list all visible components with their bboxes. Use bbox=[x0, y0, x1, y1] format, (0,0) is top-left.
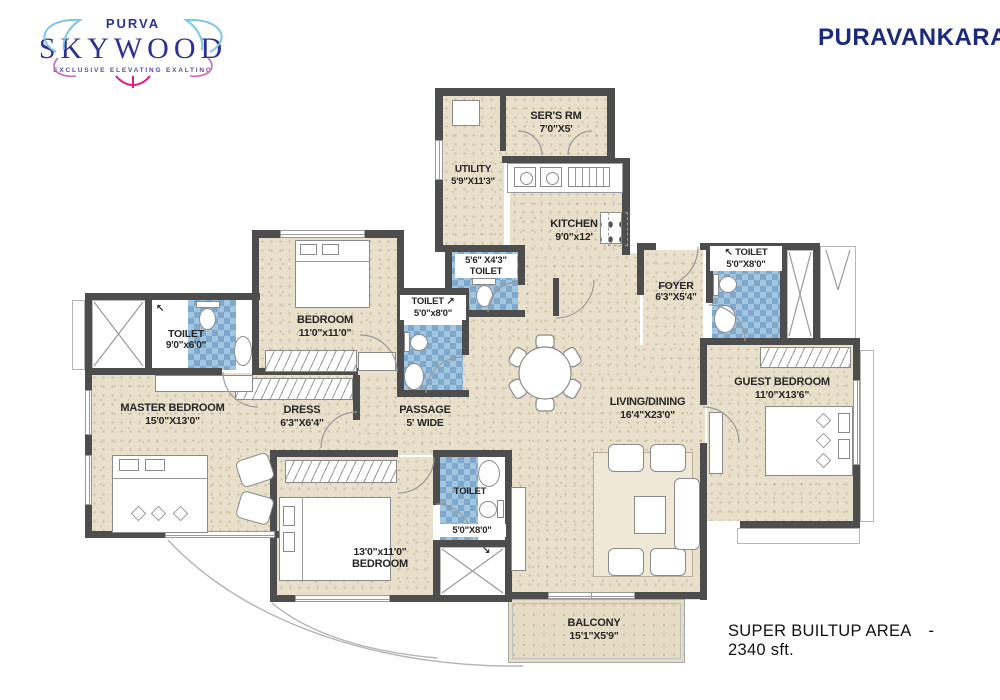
room-name: DRESS bbox=[262, 404, 342, 417]
room-dims: 5'0"X8'0" bbox=[712, 259, 780, 270]
quilt-diamond-icon bbox=[173, 506, 189, 522]
wall-segment bbox=[85, 293, 152, 300]
wall-segment bbox=[435, 88, 615, 96]
ledge-right bbox=[860, 350, 874, 522]
toilet-bowl-icon bbox=[479, 501, 497, 518]
room-name: ↖ TOILET bbox=[712, 247, 780, 259]
toilet-bowl-icon bbox=[476, 285, 493, 307]
room-name: SER'S RM bbox=[505, 110, 607, 123]
wall-segment bbox=[85, 368, 222, 375]
floor-plan-page: PURVA SKYWOOD EXCLUSIVE ELEVATING EXALTI… bbox=[0, 0, 1000, 700]
washbasin-icon bbox=[404, 363, 424, 390]
room-name: BEDROOM bbox=[330, 558, 430, 571]
armchair-icon bbox=[650, 548, 686, 576]
room-dims: 15'0"X13'0" bbox=[95, 415, 250, 427]
toilet-tank-icon bbox=[497, 500, 504, 518]
armchair-icon bbox=[608, 444, 644, 472]
armchair-icon bbox=[650, 444, 686, 472]
puravankara-wordmark: PURAVANKARA bbox=[818, 24, 1000, 52]
wall-segment bbox=[397, 288, 469, 295]
wall-segment bbox=[635, 592, 707, 599]
shaft-top-right bbox=[787, 250, 815, 340]
wall-segment bbox=[397, 390, 469, 397]
wall-segment bbox=[518, 245, 525, 285]
area-value: 2340 sft. bbox=[728, 641, 794, 660]
room-name: UTILITY bbox=[438, 164, 508, 176]
sofa-icon bbox=[674, 478, 700, 550]
room-name: KITCHEN bbox=[520, 218, 628, 231]
room-dims: 5'9"X11'3" bbox=[438, 176, 508, 187]
kitchen-sink-icon bbox=[514, 167, 536, 187]
room-label-toilet-guest: ↖ TOILET 5'0"X8'0" bbox=[710, 246, 782, 271]
logo-flourish-icon bbox=[28, 6, 238, 96]
wall-segment bbox=[145, 293, 260, 300]
tv-console-living bbox=[511, 487, 526, 571]
skywood-logo: PURVA SKYWOOD EXCLUSIVE ELEVATING EXALTI… bbox=[28, 6, 238, 96]
room-dims: 5'0"x8'0" bbox=[402, 308, 464, 319]
balcony-door bbox=[548, 592, 592, 599]
tv-unit-guest bbox=[709, 412, 723, 474]
armchair-icon bbox=[608, 548, 644, 576]
wall-segment bbox=[505, 592, 548, 599]
room-label-toilet-bedroom3-dims: 5'0"X8'0" bbox=[438, 524, 506, 537]
shaft-left bbox=[92, 300, 147, 370]
washing-machine-icon bbox=[452, 100, 480, 126]
room-name: FOYER bbox=[643, 280, 709, 292]
room-label-living: LIVING/DINING 16'4"X23'0" bbox=[585, 396, 710, 421]
window bbox=[85, 390, 92, 435]
room-name: PASSAGE bbox=[385, 404, 465, 417]
quilt-diamond-icon bbox=[816, 413, 832, 429]
room-name: LIVING/DINING bbox=[585, 396, 710, 409]
room-label-kitchen: KITCHEN 9'0"x12' bbox=[520, 218, 628, 243]
pillow-icon bbox=[838, 413, 850, 433]
shaft-bottom bbox=[440, 547, 507, 597]
room-label-foyer: FOYER 6'3"X5'4" bbox=[643, 280, 709, 304]
room-dims: 11'0"x11'0" bbox=[262, 327, 388, 339]
room-label-toilet-passage: TOILET ↗ 5'0"x8'0" bbox=[400, 295, 466, 320]
wall-segment bbox=[433, 547, 440, 602]
kitchen-sink-icon bbox=[540, 167, 562, 187]
wall-segment bbox=[700, 338, 707, 405]
room-label-bedroom2: BEDROOM 11'0"x11'0" bbox=[262, 314, 388, 339]
room-dims: 6'3"X6'4" bbox=[262, 417, 342, 429]
coffee-table-icon bbox=[634, 496, 666, 534]
pillow-icon bbox=[119, 459, 139, 471]
balcony-door bbox=[591, 592, 635, 599]
wardrobe-guest bbox=[760, 347, 851, 368]
dresser-bedroom2 bbox=[358, 352, 396, 371]
room-label-utility: UTILITY 5'9"X11'3" bbox=[438, 164, 508, 187]
room-name: GUEST BEDROOM bbox=[707, 376, 857, 389]
room-name: TOILET bbox=[150, 328, 222, 340]
room-dims: 9'0"x6'0" bbox=[150, 340, 222, 352]
quilt-diamond-icon bbox=[816, 453, 832, 469]
wall-segment bbox=[433, 450, 440, 505]
door-direction-arrow-icon: ↘ bbox=[482, 545, 490, 556]
ledge-guest-bottom bbox=[737, 528, 860, 544]
door-direction-arrow-icon: ↖ bbox=[156, 303, 164, 314]
bed-master bbox=[112, 455, 208, 533]
drainboard-icon bbox=[568, 167, 610, 187]
room-name: TOILET bbox=[440, 486, 500, 497]
room-label-guest: GUEST BEDROOM 11'0"X13'6" bbox=[707, 376, 857, 401]
room-name: BALCONY bbox=[540, 617, 648, 630]
pillow-icon bbox=[283, 532, 295, 552]
room-dims: 16'4"X23'0" bbox=[585, 409, 710, 421]
toilet-bowl-icon bbox=[199, 308, 216, 330]
room-dims: 13'0"x11'0" bbox=[330, 546, 430, 558]
room-label-dress: DRESS 6'3"X6'4" bbox=[262, 404, 342, 429]
wall-segment bbox=[553, 278, 559, 316]
area-separator: - bbox=[929, 622, 935, 641]
wall-segment bbox=[700, 443, 707, 600]
ledge-left bbox=[72, 300, 85, 370]
pillow-icon bbox=[145, 459, 165, 471]
toilet-tank-icon bbox=[196, 301, 220, 308]
room-name: TOILET ↗ bbox=[402, 296, 464, 308]
wall-segment bbox=[433, 450, 512, 457]
window bbox=[85, 455, 92, 505]
room-dims: 11'0"X13'6" bbox=[707, 389, 857, 401]
wall-segment bbox=[353, 375, 360, 420]
pillow-icon bbox=[838, 439, 850, 459]
wall-segment bbox=[433, 540, 512, 547]
ledge-top-right bbox=[820, 246, 856, 340]
bed-bedroom2 bbox=[295, 240, 370, 308]
wall-segment bbox=[270, 450, 398, 457]
washbasin-icon bbox=[478, 460, 500, 487]
wardrobe-bedroom3 bbox=[285, 460, 397, 483]
dresser-master bbox=[155, 375, 253, 392]
wall-segment bbox=[607, 88, 615, 166]
quilt-diamond-icon bbox=[131, 506, 147, 522]
room-label-sers: SER'S RM 7'0"X5' bbox=[505, 110, 607, 135]
room-dims: 5' WIDE bbox=[385, 417, 465, 429]
wall-segment bbox=[433, 595, 512, 602]
room-dims: 5'0"X8'0" bbox=[440, 525, 504, 536]
wall-segment bbox=[502, 156, 610, 163]
area-label: SUPER BUILTUP AREA bbox=[728, 622, 912, 641]
door-direction-arrow-icon: ↖ bbox=[724, 247, 732, 258]
wall-segment bbox=[85, 293, 92, 375]
room-label-toilet-kitchen: 5'6" X4'3" TOILET bbox=[455, 254, 517, 278]
pillow-icon bbox=[300, 244, 317, 255]
room-label-passage: PASSAGE 5' WIDE bbox=[385, 404, 465, 429]
window bbox=[295, 595, 390, 602]
room-dims: 15'1"X5'9" bbox=[540, 630, 648, 642]
room-dims: 9'0"x12' bbox=[520, 231, 628, 243]
quilt-diamond-icon bbox=[816, 433, 832, 449]
pillow-icon bbox=[322, 244, 339, 255]
room-dims: 5'6" X4'3" bbox=[457, 255, 515, 266]
room-label-master: MASTER BEDROOM 15'0"X13'0" bbox=[95, 402, 250, 427]
bed-guest bbox=[765, 406, 853, 476]
room-name: TOILET bbox=[457, 266, 515, 277]
washbasin-icon bbox=[234, 336, 252, 366]
wall-segment bbox=[813, 243, 820, 343]
room-name: MASTER BEDROOM bbox=[95, 402, 250, 415]
window bbox=[280, 230, 365, 238]
door-direction-arrow-icon: ↗ bbox=[446, 296, 454, 307]
wall-segment bbox=[252, 293, 259, 375]
quilt-diamond-icon bbox=[151, 506, 167, 522]
toilet-tank-icon bbox=[472, 278, 496, 285]
room-label-balcony: BALCONY 15'1"X5'9" bbox=[540, 617, 648, 642]
room-label-bedroom3: 13'0"x11'0" BEDROOM bbox=[330, 546, 430, 571]
wardrobe-bedroom2 bbox=[265, 350, 357, 372]
washbasin-icon bbox=[714, 305, 736, 333]
room-label-toilet-bedroom3-name: TOILET bbox=[440, 486, 500, 497]
room-name: BEDROOM bbox=[262, 314, 388, 327]
toilet-bowl-icon bbox=[719, 276, 737, 293]
room-label-toilet-master: TOILET 9'0"x6'0" bbox=[150, 328, 222, 352]
toilet-bowl-icon bbox=[410, 334, 428, 351]
wall-segment bbox=[700, 338, 860, 345]
wall-segment bbox=[740, 521, 860, 528]
room-dims: 6'3"X5'4" bbox=[643, 292, 709, 304]
room-dims: 7'0"X5' bbox=[505, 123, 607, 135]
super-builtup-area: SUPER BUILTUP AREA - 2340 sft. bbox=[728, 622, 1000, 660]
pillow-icon bbox=[283, 506, 295, 526]
